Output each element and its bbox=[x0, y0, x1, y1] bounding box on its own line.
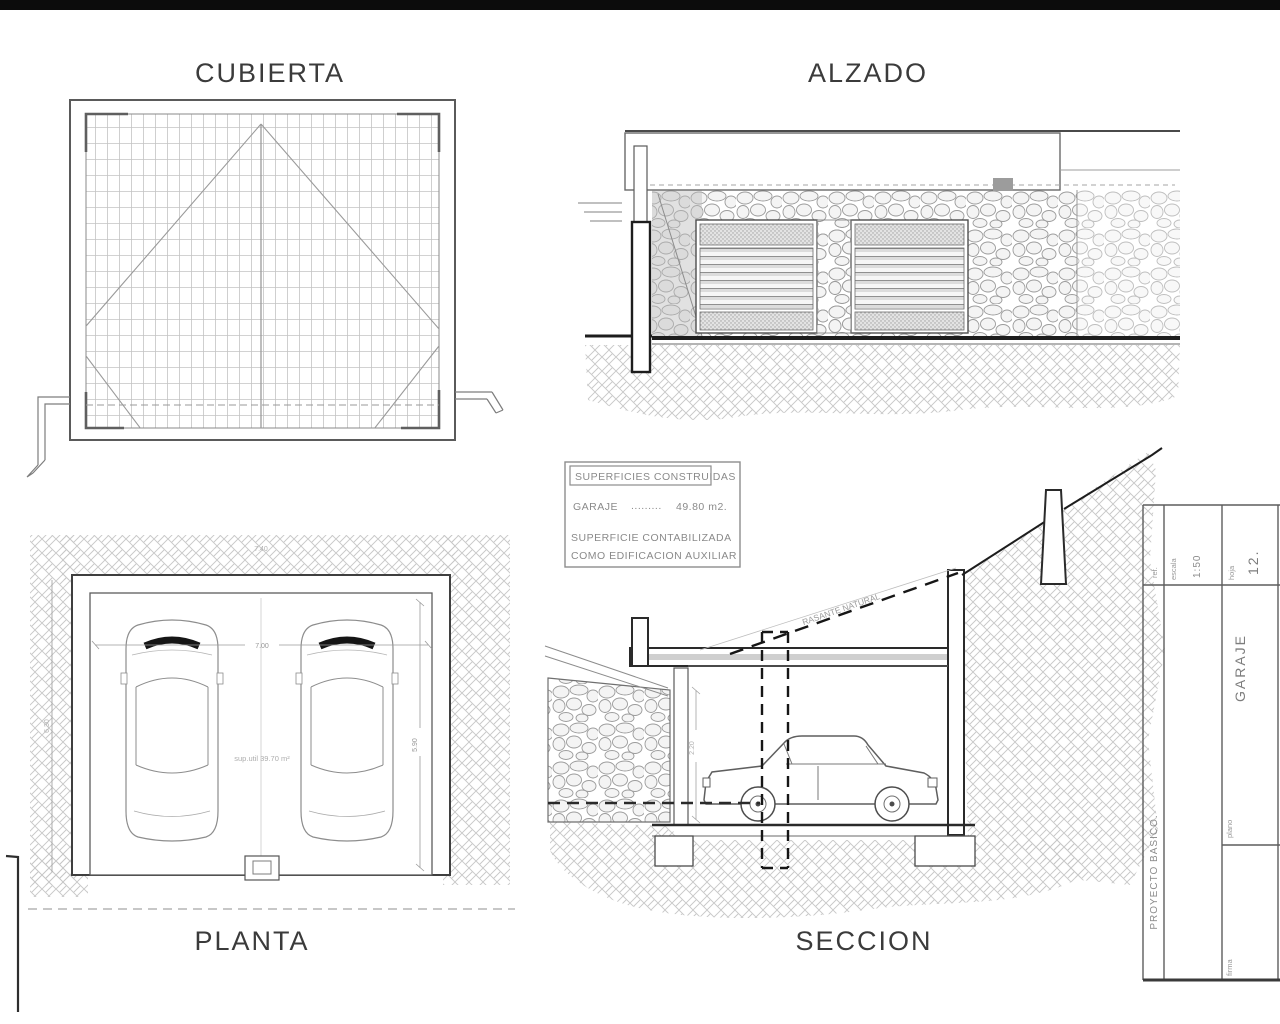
notes-header: SUPERFICIES CONSTRUIDAS bbox=[575, 471, 736, 483]
dim-clear-height: 2.20 bbox=[689, 741, 696, 755]
alzado-view: ALZADO bbox=[578, 58, 1180, 420]
dim-outer-depth: 6.30 bbox=[44, 719, 51, 733]
rasante-label: RASANTE NATURAL bbox=[801, 591, 882, 627]
planta-title: PLANTA bbox=[194, 926, 309, 956]
tb-hoja-label: hoja bbox=[1227, 565, 1236, 580]
surface-notes-box: SUPERFICIES CONSTRUIDAS GARAJE .........… bbox=[565, 462, 740, 567]
tb-escala-value: 1:50 bbox=[1192, 555, 1203, 578]
plan-door-operator bbox=[245, 856, 279, 880]
planta-view: 7.00 7.40 5.90 6.30 sup.util 39.70 m² PL… bbox=[28, 535, 515, 956]
tb-fase-value: PROYECTO BASICO. bbox=[1149, 814, 1160, 929]
notes-garaje-label: GARAJE bbox=[573, 501, 618, 513]
notes-leader-dots: ......... bbox=[631, 500, 662, 512]
page-top-bar bbox=[0, 0, 1280, 10]
notes-garaje-value: 49.80 m2. bbox=[676, 501, 727, 513]
car-section bbox=[703, 736, 938, 821]
tb-plano-label: plano bbox=[1225, 820, 1234, 838]
grade-marks bbox=[578, 203, 622, 221]
roof-downspout-right bbox=[455, 392, 503, 413]
roof-downspout-left bbox=[27, 397, 70, 477]
seccion-title: SECCION bbox=[795, 926, 932, 956]
cubierta-view: CUBIERTA bbox=[27, 58, 503, 477]
dim-inner-width: 7.00 bbox=[255, 643, 269, 650]
tb-plano-value: GARAJE bbox=[1232, 634, 1248, 702]
drawing-canvas: CUBIERTA ALZADO bbox=[0, 0, 1280, 1024]
car-plan-right bbox=[296, 620, 398, 841]
title-block: ref. escala 1:50 hoja 12. plano GARAJE P… bbox=[1143, 505, 1280, 980]
notes-line2: COMO EDIFICACION AUXILIAR bbox=[571, 550, 737, 562]
notes-line1: SUPERFICIE CONTABILIZADA bbox=[571, 532, 732, 544]
alzado-title: ALZADO bbox=[808, 58, 928, 88]
garage-door-left bbox=[696, 220, 817, 333]
tb-firma-label: firma bbox=[1225, 959, 1234, 976]
car-plan-left bbox=[121, 620, 223, 841]
dim-inner-depth: 5.90 bbox=[412, 738, 419, 752]
tb-ref-label: ref. bbox=[1150, 567, 1159, 578]
garage-door-right bbox=[851, 220, 968, 333]
dim-outer-width: 7.40 bbox=[254, 546, 268, 553]
page-left-mark bbox=[6, 856, 18, 1012]
drawing-sheet: CUBIERTA ALZADO bbox=[0, 0, 1280, 1024]
tb-hoja-value: 12. bbox=[1245, 550, 1261, 575]
tb-escala-label: escala bbox=[1169, 557, 1178, 580]
plan-sup-util: sup.util 39.70 m² bbox=[234, 754, 290, 763]
cubierta-title: CUBIERTA bbox=[195, 58, 345, 88]
